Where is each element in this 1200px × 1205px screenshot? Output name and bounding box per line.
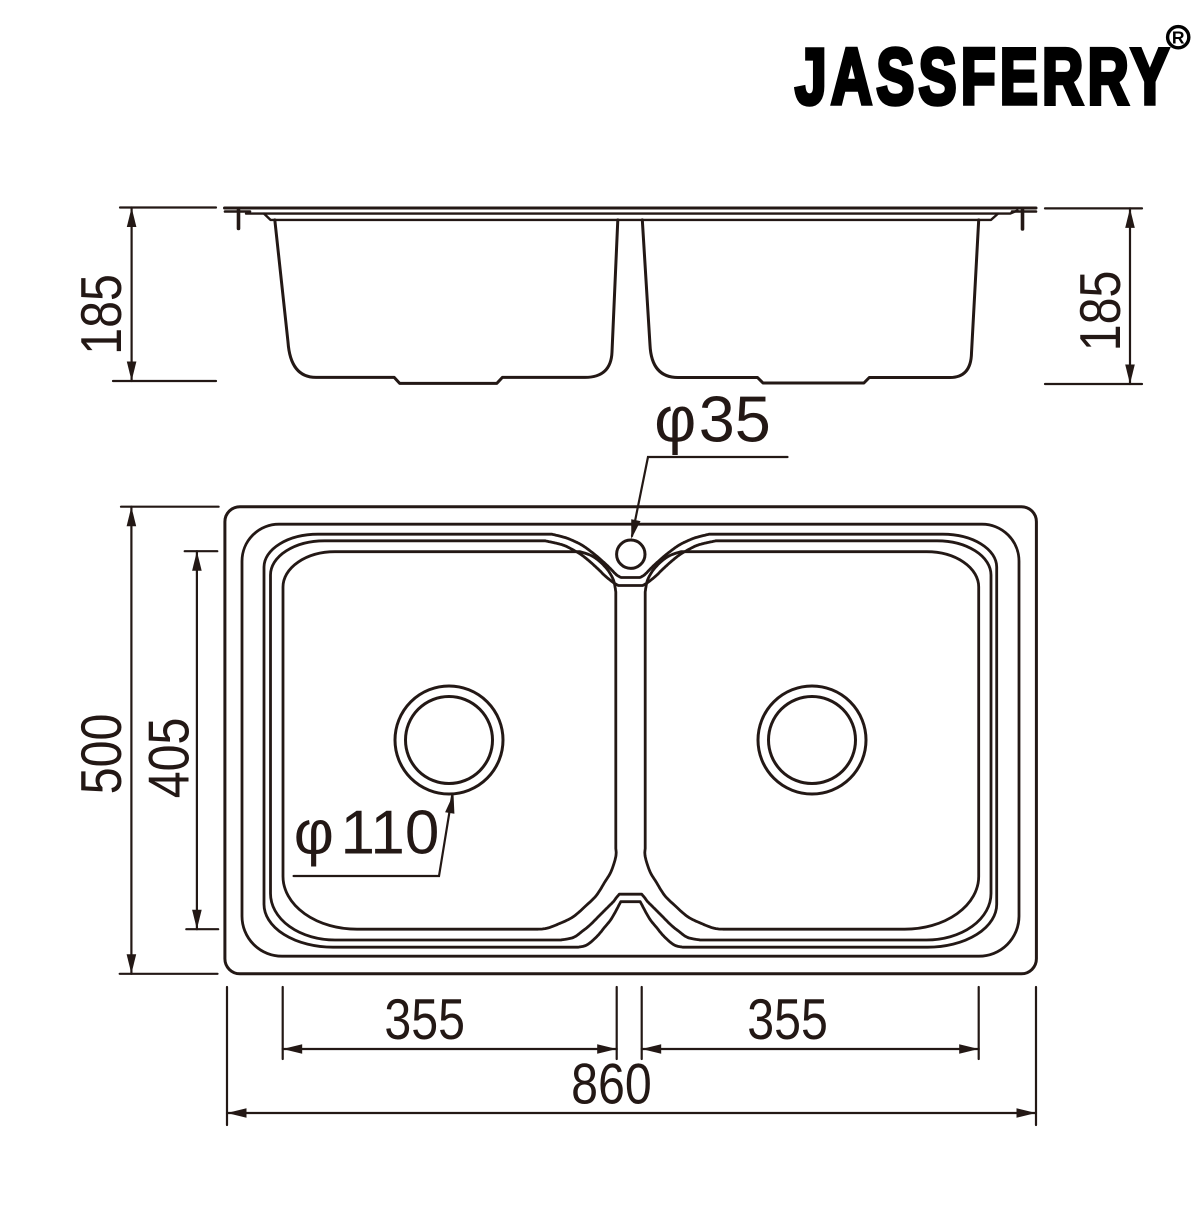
svg-text:355: 355 <box>747 988 828 1052</box>
svg-text:185: 185 <box>70 274 134 355</box>
svg-text:860: 860 <box>571 1053 652 1117</box>
svg-text:φ110: φ110 <box>294 799 440 868</box>
svg-text:φ35: φ35 <box>654 382 771 455</box>
svg-text:355: 355 <box>384 988 465 1052</box>
svg-text:185: 185 <box>1069 271 1133 352</box>
svg-text:JASSFERRY: JASSFERRY <box>795 32 1173 120</box>
svg-text:R: R <box>1172 27 1185 47</box>
svg-text:405: 405 <box>138 718 202 799</box>
svg-text:500: 500 <box>70 714 134 795</box>
